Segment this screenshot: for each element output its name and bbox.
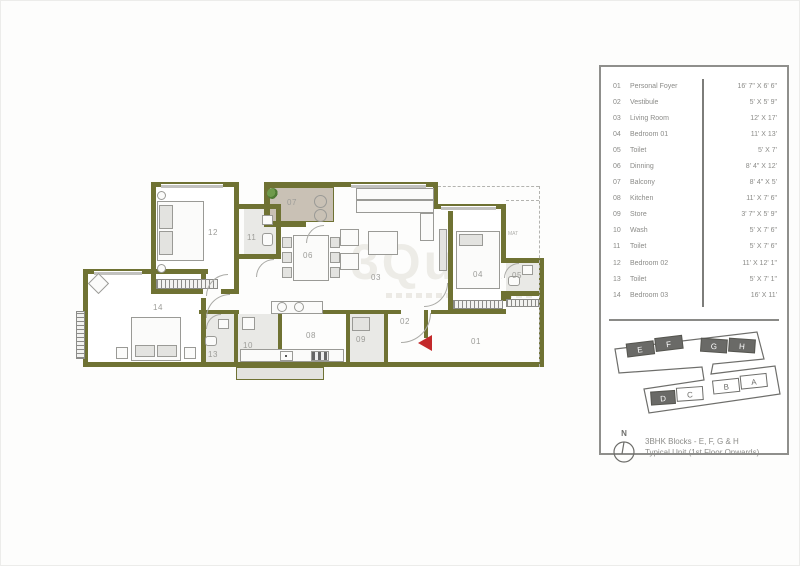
legend-row: 02Vestibule5' X 5' 9" bbox=[601, 94, 787, 110]
wardrobe-hatch bbox=[453, 300, 503, 309]
legend-table: 01Personal Foyer16' 7" X 6' 6" 02Vestibu… bbox=[601, 78, 787, 303]
room-label-07: 07 bbox=[287, 198, 297, 207]
pillow bbox=[157, 345, 177, 357]
armchair bbox=[340, 229, 359, 246]
keyplan-caption-block: N 3BHK Blocks - E, F, G & H Typical Unit… bbox=[611, 430, 759, 469]
legend-row: 14Bedroom 0316' X 11' bbox=[601, 287, 787, 303]
chair bbox=[282, 267, 292, 278]
floorplan-sheet: 3Quik bbox=[0, 0, 800, 566]
block-BA: B A bbox=[712, 373, 767, 394]
railing-hatch bbox=[506, 299, 539, 307]
sink-bowl bbox=[277, 302, 287, 312]
room-label-01: 01 bbox=[471, 337, 481, 346]
legend-row: 12Bedroom 0211' X 12' 1" bbox=[601, 255, 787, 271]
room-label-02: 02 bbox=[400, 317, 410, 326]
chair bbox=[330, 252, 340, 263]
wall bbox=[239, 254, 281, 259]
sink-drain bbox=[285, 355, 287, 357]
wash-basin bbox=[262, 215, 273, 225]
toilet-wc bbox=[262, 233, 273, 246]
wall bbox=[151, 289, 203, 294]
block-letter: G bbox=[710, 342, 717, 351]
wall bbox=[264, 182, 339, 187]
block-DC: D C bbox=[650, 387, 703, 406]
door-arc bbox=[256, 259, 274, 277]
wall bbox=[501, 204, 506, 263]
room-label-11: 11 bbox=[247, 233, 256, 242]
legend-panel: 01Personal Foyer16' 7" X 6' 6" 02Vestibu… bbox=[599, 65, 789, 455]
room-label-09: 09 bbox=[356, 335, 366, 344]
planter-pot bbox=[314, 195, 327, 208]
caption-line-2: Typical Unit (1st Floor Onwards) bbox=[645, 447, 759, 458]
room-label-10: 10 bbox=[243, 341, 253, 350]
pillow bbox=[135, 345, 155, 357]
tv-unit bbox=[439, 229, 447, 271]
wall bbox=[448, 209, 453, 314]
wall bbox=[151, 182, 156, 294]
room-label-03: 03 bbox=[371, 273, 381, 282]
door-arc bbox=[306, 225, 324, 243]
legend-row: 11Toilet5' X 7' 6" bbox=[601, 239, 787, 255]
wardrobe-hatch bbox=[76, 311, 85, 359]
keyplan-caption: 3BHK Blocks - E, F, G & H Typical Unit (… bbox=[645, 430, 759, 458]
room-label-05: 05 bbox=[512, 271, 522, 280]
wall bbox=[321, 310, 384, 314]
legend-row: 13Toilet5' X 7' 1" bbox=[601, 271, 787, 287]
side-table bbox=[184, 347, 196, 359]
mat-label: MAT bbox=[508, 231, 518, 237]
room-label-06: 06 bbox=[303, 251, 313, 260]
pillow bbox=[159, 231, 173, 255]
coffee-table bbox=[368, 231, 398, 255]
north-arrow-icon bbox=[611, 438, 637, 464]
caption-line-1: 3BHK Blocks - E, F, G & H bbox=[645, 436, 759, 447]
dashed-line bbox=[438, 186, 539, 187]
chair bbox=[330, 237, 340, 248]
legend-row: 07Balcony8' 4" X 5' bbox=[601, 175, 787, 191]
wall bbox=[346, 312, 350, 367]
legend-row: 08Kitchen11' X 7' 6" bbox=[601, 191, 787, 207]
room-label-04: 04 bbox=[473, 270, 483, 279]
block-GH: G H bbox=[701, 336, 756, 355]
plant-icon bbox=[267, 188, 278, 199]
planter-pot bbox=[314, 209, 327, 222]
legend-row: 10Wash5' X 7' 6" bbox=[601, 223, 787, 239]
wall bbox=[239, 204, 281, 209]
washing-machine bbox=[242, 317, 255, 330]
wall bbox=[448, 309, 506, 314]
armchair bbox=[340, 253, 359, 270]
legend-row: 01Personal Foyer16' 7" X 6' 6" bbox=[601, 78, 787, 94]
wall bbox=[388, 310, 401, 314]
chair bbox=[282, 237, 292, 248]
north-indicator: N bbox=[611, 430, 637, 469]
service-ledge bbox=[236, 367, 324, 380]
pillow bbox=[159, 205, 173, 229]
room-label-12: 12 bbox=[208, 228, 218, 237]
sofa-chaise bbox=[420, 213, 434, 241]
wash-basin bbox=[522, 265, 533, 275]
chair bbox=[330, 267, 340, 278]
wall bbox=[431, 310, 453, 314]
floor-plan: 3Quik bbox=[56, 171, 551, 411]
block-letter: H bbox=[739, 342, 746, 351]
block-letter: D bbox=[660, 394, 667, 403]
block-letter: E bbox=[637, 345, 643, 355]
store-shelf bbox=[352, 317, 370, 331]
toilet-wc bbox=[205, 336, 217, 346]
sofa-seat bbox=[356, 200, 434, 213]
door-arc bbox=[424, 283, 448, 307]
wall bbox=[501, 258, 544, 263]
wall bbox=[276, 204, 281, 259]
room-label-13: 13 bbox=[208, 350, 218, 359]
dashed-line bbox=[539, 186, 540, 367]
block-letter: B bbox=[723, 382, 729, 392]
wall bbox=[234, 182, 239, 294]
wall bbox=[234, 312, 238, 367]
legend-row: 03Living Room12' X 17' bbox=[601, 110, 787, 126]
legend-column-divider bbox=[702, 79, 704, 307]
legend-row: 05Toilet5' X 7' bbox=[601, 142, 787, 158]
dashed-line bbox=[506, 200, 539, 201]
legend-row: 09Store3' 7" X 5' 9" bbox=[601, 207, 787, 223]
chair bbox=[282, 252, 292, 263]
room-label-08: 08 bbox=[306, 331, 316, 340]
side-table bbox=[157, 191, 166, 200]
side-table bbox=[116, 347, 128, 359]
legend-section-divider bbox=[609, 319, 779, 321]
window bbox=[161, 184, 223, 189]
wall bbox=[201, 298, 206, 367]
wall bbox=[384, 310, 388, 367]
key-plan: E F G H B A D C bbox=[607, 327, 781, 427]
sofa-back bbox=[356, 188, 434, 200]
window bbox=[441, 206, 496, 211]
legend-row: 04Bedroom 0111' X 13' bbox=[601, 126, 787, 142]
room-label-14: 14 bbox=[153, 303, 163, 312]
hob-stove bbox=[311, 351, 329, 361]
north-label: N bbox=[611, 430, 637, 438]
block-letter: C bbox=[687, 390, 694, 399]
entry-arrow bbox=[418, 335, 432, 351]
sink-bowl bbox=[294, 302, 304, 312]
block-EF: E F bbox=[626, 335, 683, 357]
legend-row: 06Dinning8' 4" X 12' bbox=[601, 158, 787, 174]
side-table bbox=[157, 264, 166, 273]
pillow bbox=[459, 234, 483, 246]
